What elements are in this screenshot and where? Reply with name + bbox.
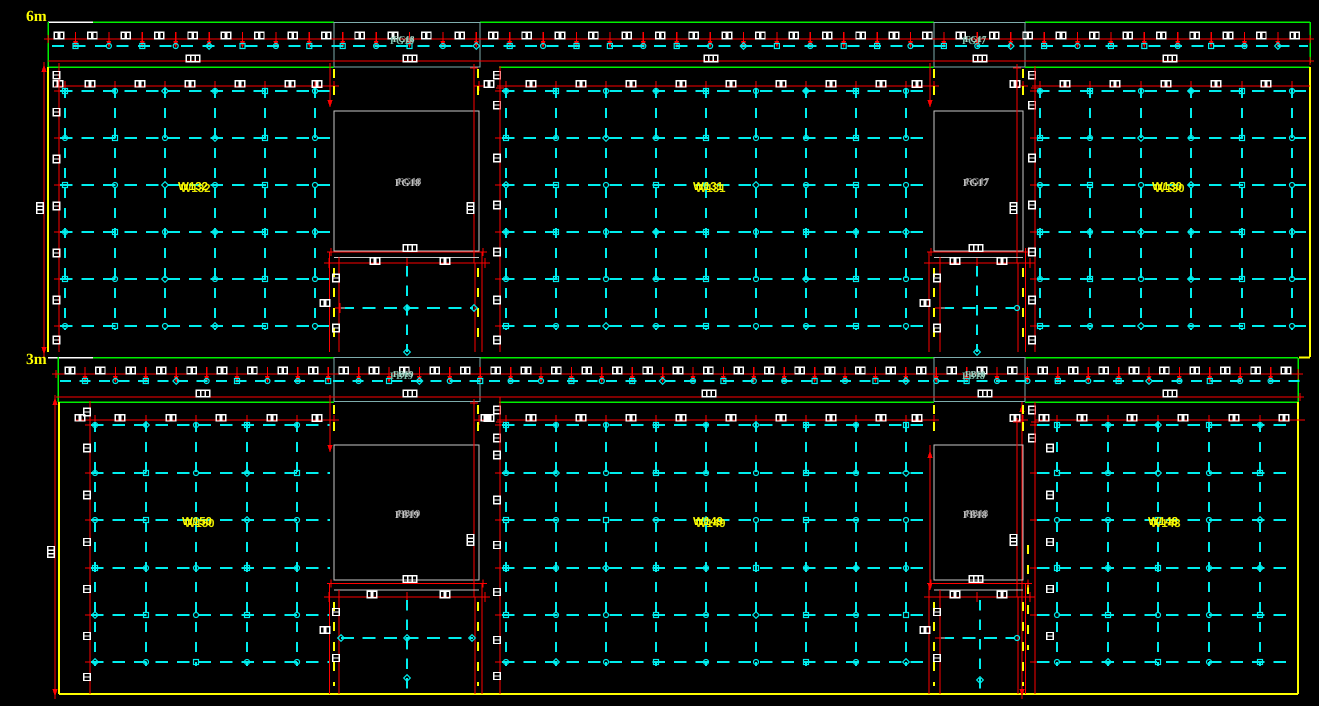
svg-text:FB19: FB19: [398, 509, 421, 520]
svg-text:W150: W150: [185, 518, 215, 530]
svg-text:W131: W131: [696, 183, 727, 195]
svg-text:FB19: FB19: [393, 369, 414, 379]
svg-text:FG17: FG17: [965, 34, 987, 44]
svg-text:FG17: FG17: [966, 177, 990, 188]
svg-text:W130: W130: [1155, 183, 1185, 195]
svg-text:6m: 6m: [26, 8, 47, 25]
svg-text:FB18: FB18: [965, 369, 986, 379]
svg-text:W149: W149: [696, 518, 726, 530]
svg-text:FG18: FG18: [398, 177, 422, 188]
svg-text:W148: W148: [1151, 518, 1182, 530]
svg-text:W132: W132: [181, 183, 211, 195]
svg-text:3m: 3m: [26, 351, 47, 368]
svg-text:FG18: FG18: [393, 34, 415, 44]
svg-text:FB18: FB18: [966, 509, 989, 520]
